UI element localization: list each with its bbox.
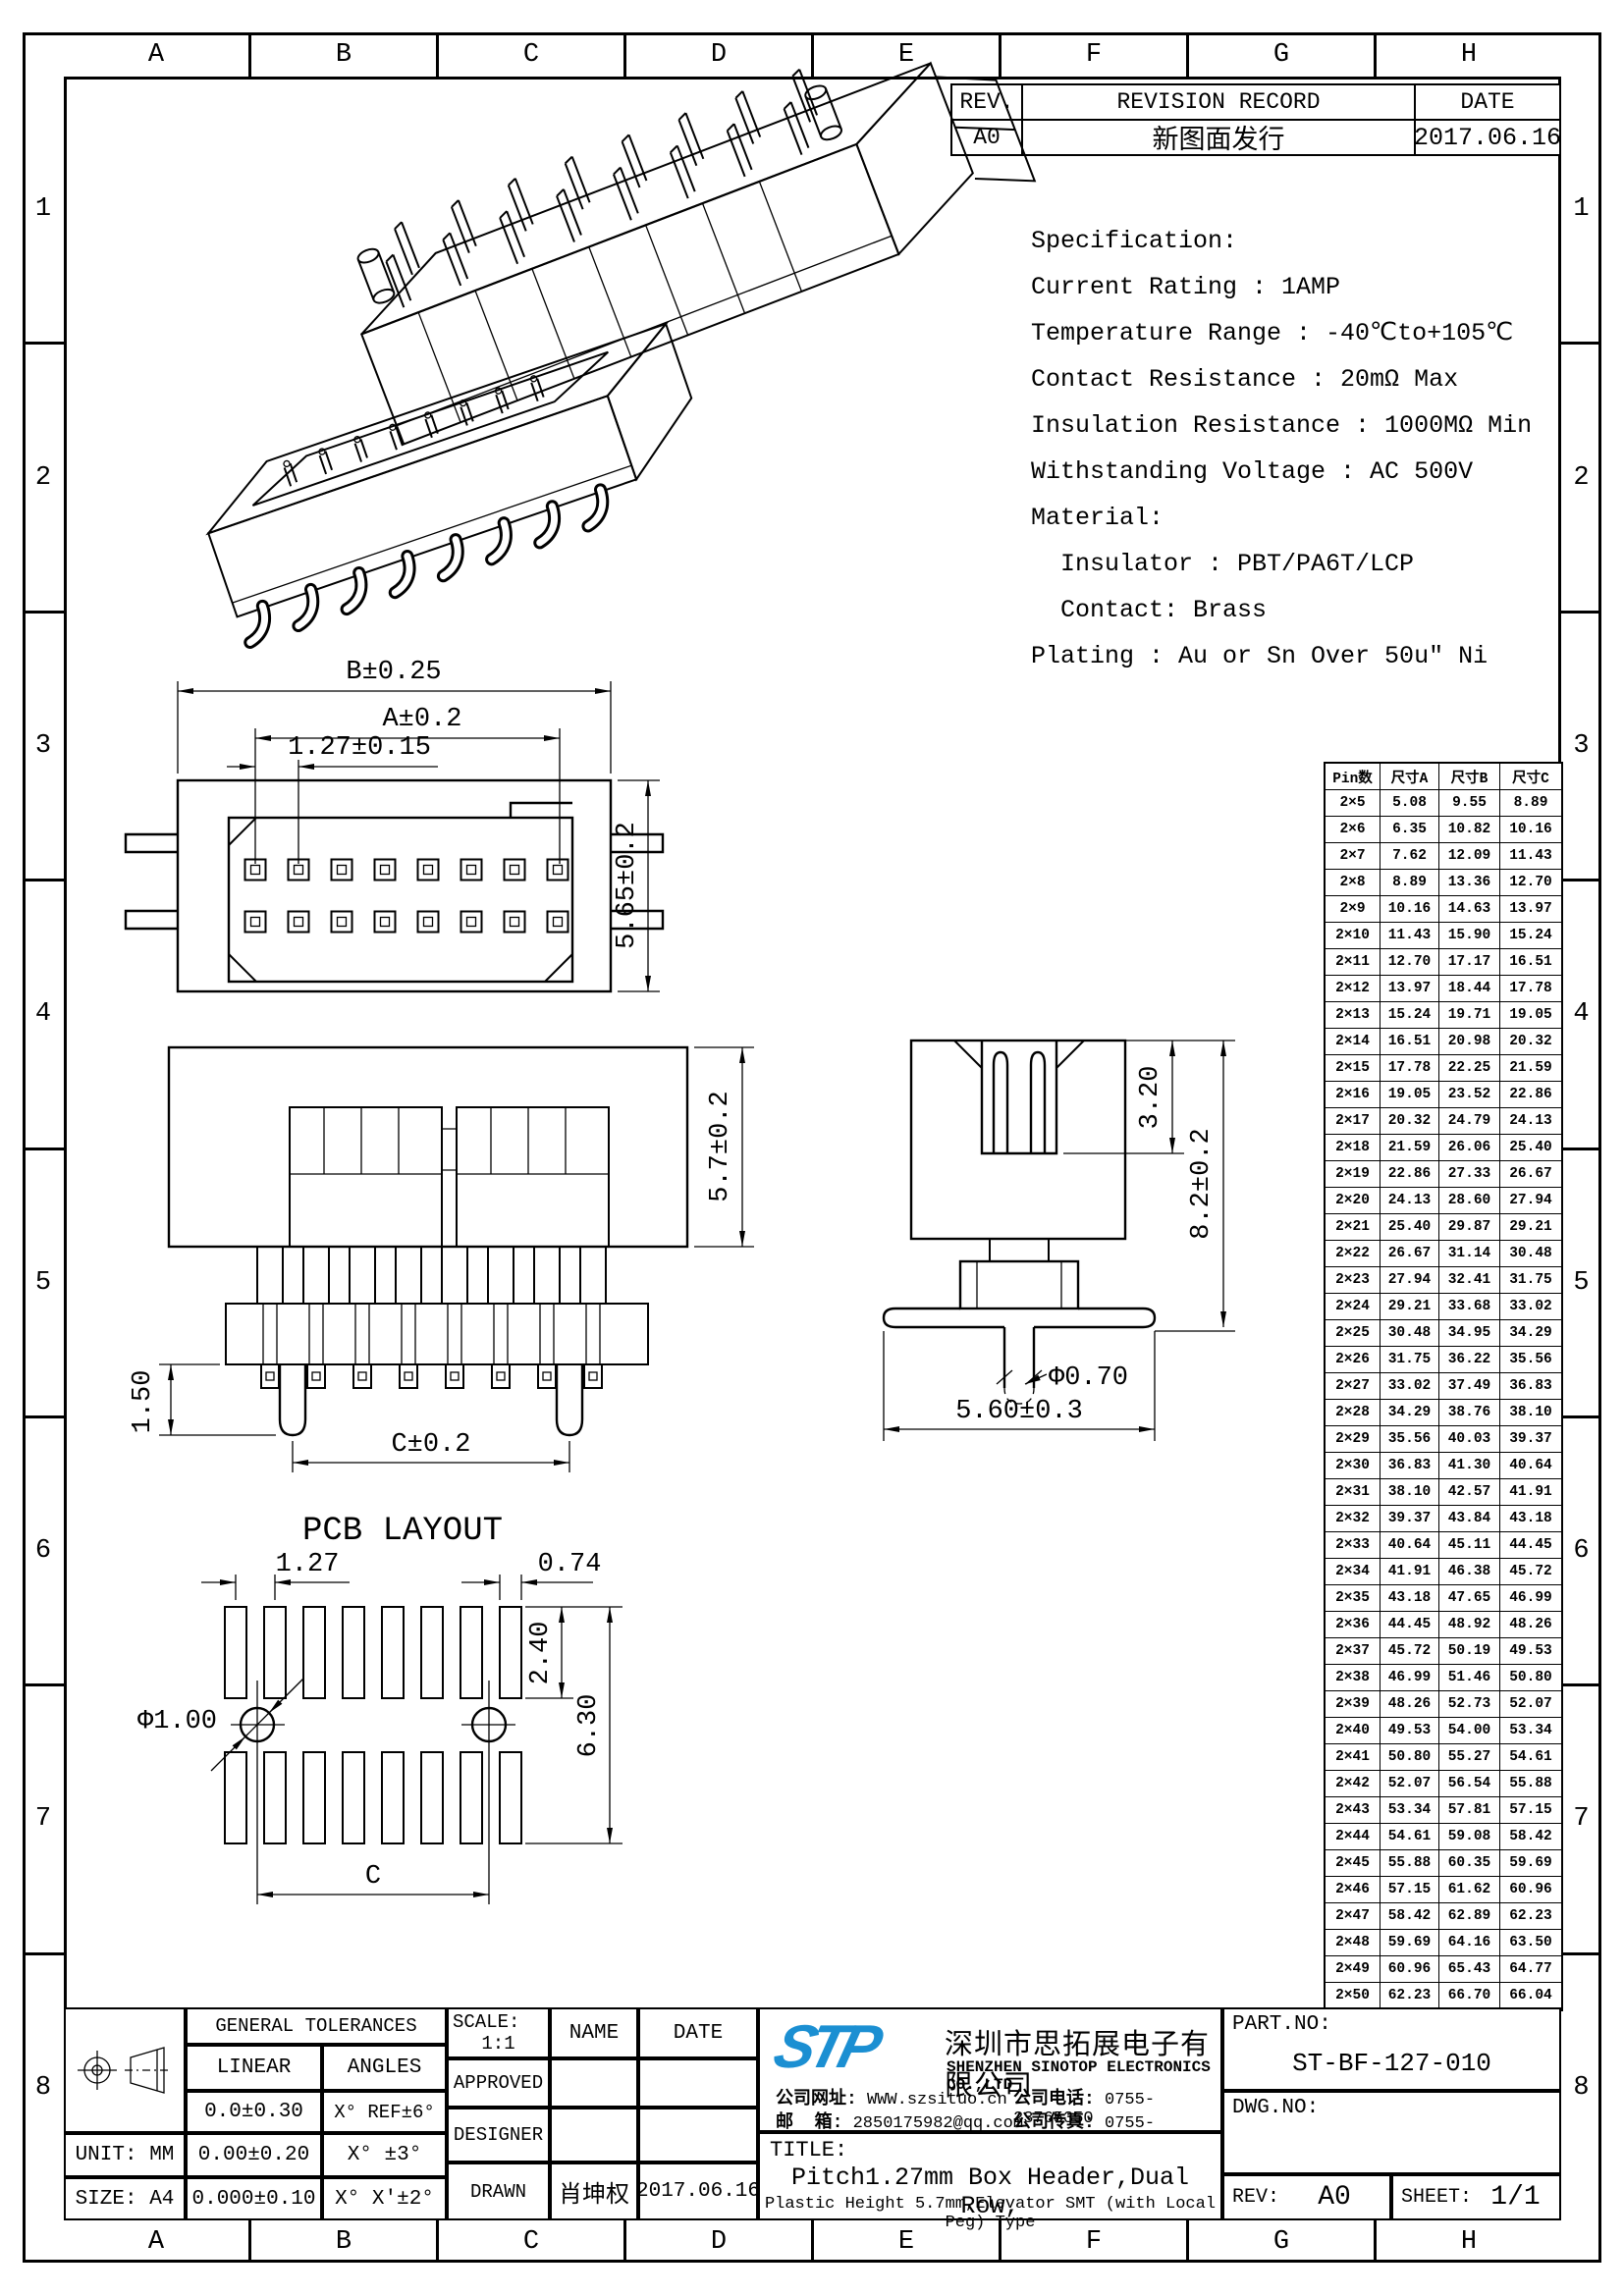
dim-table-value: 43.18 [1500,1506,1561,1532]
dim-table-value: 7.62 [1380,843,1439,870]
dim-table-value: 59.69 [1380,1930,1439,1956]
company-email-label: 邮 箱: [776,2113,842,2133]
linear-tol-row-1: 0.0±0.30 [186,2091,322,2133]
dim-table-value: 15.24 [1380,1002,1439,1029]
dim-table-value: 11.43 [1380,923,1439,949]
grid-number-1: 1 [1561,77,1601,342]
grid-number-2: 2 [1561,342,1601,610]
dim-table-value: 16.51 [1380,1029,1439,1055]
dim-table-value: 21.59 [1500,1055,1561,1082]
sheet-label: SHEET: [1401,2186,1472,2209]
drawing-title-cell: TITLE: Pitch1.27mm Box Header,Dual Row, … [758,2132,1222,2220]
grid-number-5: 5 [23,1148,64,1415]
dim-table-value: 19.05 [1500,1002,1561,1029]
part-no-value: ST-BF-127-010 [1224,2049,1559,2078]
size-cell: SIZE: A4 [64,2177,186,2220]
dim-table-value: 34.29 [1500,1320,1561,1347]
dim-table-value: 41.30 [1439,1453,1500,1479]
dim-table-value: 24.13 [1500,1108,1561,1135]
dim-table-header-pins: Pin数 [1326,764,1380,790]
dim-table-header-c: 尺寸C [1500,764,1561,790]
dim-table-pins: 2×27 [1326,1373,1380,1400]
dim-table-value: 59.08 [1439,1824,1500,1850]
part-no-cell: PART.NO: ST-BF-127-010 [1222,2007,1561,2091]
dim-table-value: 35.56 [1380,1426,1439,1453]
dim-table-pins: 2×21 [1326,1214,1380,1241]
dim-table-value: 14.63 [1439,896,1500,923]
dim-table-pins: 2×13 [1326,1002,1380,1029]
grid-letter-E: E [811,32,999,77]
dim-table-header-b: 尺寸B [1439,764,1500,790]
designer-date-cell [638,2108,758,2163]
dim-table-pins: 2×50 [1326,1983,1380,2009]
dim-table-pins: 2×6 [1326,817,1380,843]
dim-table-value: 22.86 [1380,1161,1439,1188]
dim-table-value: 10.16 [1380,896,1439,923]
dim-table-value: 57.81 [1439,1797,1500,1824]
dim-table-value: 29.21 [1500,1214,1561,1241]
approved-date-cell [638,2058,758,2108]
dim-table-value: 5.08 [1380,790,1439,817]
dim-table-value: 27.94 [1500,1188,1561,1214]
dwg-no-cell: DWG.NO: [1222,2091,1561,2174]
dwg-no-label: DWG.NO: [1232,2097,1319,2119]
spec-line-6: Material: [1031,495,1561,541]
dim-table-value: 31.75 [1500,1267,1561,1294]
dim-table-value: 62.23 [1380,1983,1439,2009]
spec-line-1: Current Rating : 1AMP [1031,264,1561,310]
specification-block: Specification:Current Rating : 1AMPTempe… [1031,218,1561,679]
dim-table-value: 23.52 [1439,1082,1500,1108]
approved-name-cell [550,2058,638,2108]
angle-tol-row-1: X° REF±6° [322,2091,447,2133]
dim-table-pins: 2×48 [1326,1930,1380,1956]
dim-table-value: 54.00 [1439,1718,1500,1744]
dim-table-value: 10.82 [1439,817,1500,843]
spec-line-8: Contact: Brass [1031,587,1561,633]
linear-tol-row-3: 0.000±0.10 [186,2177,322,2220]
scale-label: SCALE: [453,2011,519,2033]
dim-table-pins: 2×34 [1326,1559,1380,1585]
dim-table-pins: 2×49 [1326,1956,1380,1983]
dim-table-value: 44.45 [1380,1612,1439,1638]
dim-table-value: 13.97 [1500,896,1561,923]
dim-table-value: 25.40 [1380,1214,1439,1241]
dim-table-value: 64.16 [1439,1930,1500,1956]
revision-date-header: DATE [1414,83,1561,121]
dim-table-value: 37.49 [1439,1373,1500,1400]
dim-table-pins: 2×47 [1326,1903,1380,1930]
dim-table-value: 60.96 [1380,1956,1439,1983]
angles-header: ANGLES [322,2045,447,2091]
dim-table-value: 8.89 [1500,790,1561,817]
dim-table-value: 19.71 [1439,1002,1500,1029]
grid-number-4: 4 [1561,879,1601,1147]
revision-record-value: 新图面发行 [1021,119,1416,156]
dim-table-value: 53.34 [1500,1718,1561,1744]
grid-letter-H: H [1374,32,1561,77]
revision-date-value: 2017.06.16 [1414,119,1561,156]
dim-table-value: 10.16 [1500,817,1561,843]
grid-letter-H: H [1374,2220,1561,2263]
grid-letter-C: C [436,2220,623,2263]
dim-table-pins: 2×23 [1326,1267,1380,1294]
dim-table-pins: 2×44 [1326,1824,1380,1850]
dim-table-value: 8.89 [1380,870,1439,896]
grid-number-5: 5 [1561,1148,1601,1415]
dim-table-value: 27.33 [1439,1161,1500,1188]
dim-table-value: 50.80 [1500,1665,1561,1691]
designer-label: DESIGNER [447,2108,550,2163]
spec-line-0: Specification: [1031,218,1561,264]
grid-numbers-right: 12345678 [1561,77,1601,2220]
rev-label: REV: [1232,2186,1279,2209]
dim-table-value: 38.10 [1500,1400,1561,1426]
dim-table-value: 22.25 [1439,1055,1500,1082]
dim-table-value: 24.13 [1380,1188,1439,1214]
dim-table-value: 41.91 [1500,1479,1561,1506]
dim-table-pins: 2×12 [1326,976,1380,1002]
unit-cell: UNIT: MM [64,2133,186,2177]
dim-table-value: 45.72 [1380,1638,1439,1665]
dim-table-pins: 2×46 [1326,1877,1380,1903]
dim-table-value: 36.83 [1380,1453,1439,1479]
dim-table-value: 46.99 [1500,1585,1561,1612]
dim-table-value: 60.96 [1500,1877,1561,1903]
dim-table-value: 48.26 [1500,1612,1561,1638]
dim-table-pins: 2×5 [1326,790,1380,817]
dim-table-pins: 2×28 [1326,1400,1380,1426]
drawn-date: 2017.06.16 [638,2163,758,2220]
grid-letter-D: D [623,32,811,77]
drawn-name: 肖坤权 [550,2163,638,2220]
dim-table-value: 55.88 [1380,1850,1439,1877]
grid-number-7: 7 [23,1683,64,1951]
dim-table-value: 26.06 [1439,1135,1500,1161]
dim-table-pins: 2×8 [1326,870,1380,896]
dim-table-value: 59.69 [1500,1850,1561,1877]
dim-table-value: 28.60 [1439,1188,1500,1214]
revision-record-header: REVISION RECORD [1021,83,1416,121]
dim-table-value: 31.75 [1380,1347,1439,1373]
dim-table-value: 27.94 [1380,1267,1439,1294]
dim-table-pins: 2×24 [1326,1294,1380,1320]
dim-table-value: 25.40 [1500,1135,1561,1161]
name-header: NAME [550,2007,638,2058]
dim-table-pins: 2×10 [1326,923,1380,949]
date-header: DATE [638,2007,758,2058]
dim-table-value: 58.42 [1380,1903,1439,1930]
dim-table-value: 33.02 [1380,1373,1439,1400]
dim-table-pins: 2×39 [1326,1691,1380,1718]
dim-table-value: 55.88 [1500,1771,1561,1797]
dim-table-value: 39.37 [1500,1426,1561,1453]
spec-line-2: Temperature Range : -40℃to+105℃ [1031,310,1561,356]
dim-table-pins: 2×7 [1326,843,1380,870]
dim-table-value: 15.24 [1500,923,1561,949]
dim-table-header-a: 尺寸A [1380,764,1439,790]
dim-table-value: 11.43 [1500,843,1561,870]
company-website-label: 公司网址: [776,2090,857,2109]
rev-value: A0 [1279,2182,1389,2213]
dim-table-value: 66.04 [1500,1983,1561,2009]
dim-table-value: 21.59 [1380,1135,1439,1161]
grid-letter-B: B [248,32,436,77]
company-phone-label: 公司电话: [1013,2090,1095,2109]
dim-table-value: 12.70 [1380,949,1439,976]
dim-table-pins: 2×31 [1326,1479,1380,1506]
dim-table-value: 33.68 [1439,1294,1500,1320]
dim-table-value: 20.32 [1500,1029,1561,1055]
scale-value: 1:1 [453,2033,544,2055]
grid-number-6: 6 [1561,1415,1601,1683]
linear-header: LINEAR [186,2045,322,2091]
dim-table-value: 66.70 [1439,1983,1500,2009]
dim-table-pins: 2×9 [1326,896,1380,923]
stp-logo: STP [767,2013,882,2082]
dim-table-value: 51.46 [1439,1665,1500,1691]
dim-table-pins: 2×37 [1326,1638,1380,1665]
dim-table-value: 63.50 [1500,1930,1561,1956]
dim-table-value: 30.48 [1380,1320,1439,1347]
grid-number-3: 3 [1561,611,1601,879]
dim-table-value: 53.34 [1380,1797,1439,1824]
dim-table-value: 45.11 [1439,1532,1500,1559]
dim-table-pins: 2×22 [1326,1241,1380,1267]
scale-cell: SCALE: 1:1 [447,2007,550,2058]
dim-table-value: 64.77 [1500,1956,1561,1983]
title-label: TITLE: [770,2138,847,2163]
dim-table-value: 20.98 [1439,1029,1500,1055]
dim-table-value: 45.72 [1500,1559,1561,1585]
sheet-value: 1/1 [1472,2182,1559,2213]
dim-table-value: 44.45 [1500,1532,1561,1559]
dim-table-value: 9.55 [1439,790,1500,817]
dim-table-value: 40.64 [1380,1532,1439,1559]
projection-symbol [66,2009,184,2131]
designer-name-cell [550,2108,638,2163]
dim-table-value: 48.92 [1439,1612,1500,1638]
dim-table-pins: 2×11 [1326,949,1380,976]
dim-table-value: 36.22 [1439,1347,1500,1373]
dim-table-value: 17.78 [1380,1055,1439,1082]
spec-line-4: Insulation Resistance : 1000MΩ Min [1031,402,1561,449]
dim-table-pins: 2×17 [1326,1108,1380,1135]
dim-table-value: 36.83 [1500,1373,1561,1400]
spec-line-3: Contact Resistance : 20mΩ Max [1031,356,1561,402]
grid-letter-F: F [999,32,1186,77]
dim-table-pins: 2×33 [1326,1532,1380,1559]
dim-table-pins: 2×25 [1326,1320,1380,1347]
dim-table-pins: 2×36 [1326,1612,1380,1638]
dim-table-pins: 2×18 [1326,1135,1380,1161]
dim-table-value: 40.64 [1500,1453,1561,1479]
dim-table-value: 57.15 [1500,1797,1561,1824]
dim-table-value: 22.86 [1500,1082,1561,1108]
dim-table-pins: 2×35 [1326,1585,1380,1612]
revision-rev-value: A0 [950,119,1023,156]
dim-table-value: 16.51 [1500,949,1561,976]
rev-cell: REV: A0 [1222,2174,1391,2220]
dim-table-value: 40.03 [1439,1426,1500,1453]
dim-table-pins: 2×40 [1326,1718,1380,1744]
spec-line-9: Plating : Au or Sn Over 50u″ Ni [1031,633,1561,679]
company-block: STP 深圳市思拓展电子有限公司 SHENZHEN SINOTOP ELECTR… [758,2007,1222,2132]
dim-table-value: 13.36 [1439,870,1500,896]
dim-table-pins: 2×26 [1326,1347,1380,1373]
drawn-label: DRAWN [447,2163,550,2220]
grid-number-7: 7 [1561,1683,1601,1951]
dim-table-pins: 2×14 [1326,1029,1380,1055]
angle-tol-row-3: X° X'±2° [322,2177,447,2220]
dim-table-value: 60.35 [1439,1850,1500,1877]
dim-table-pins: 2×15 [1326,1055,1380,1082]
approved-label: APPROVED [447,2058,550,2108]
dim-table-value: 18.44 [1439,976,1500,1002]
dim-table-pins: 2×38 [1326,1665,1380,1691]
dim-table-value: 56.54 [1439,1771,1500,1797]
dim-table-pins: 2×30 [1326,1453,1380,1479]
grid-letter-C: C [436,32,623,77]
dim-table-value: 15.90 [1439,923,1500,949]
dim-table-value: 34.29 [1380,1400,1439,1426]
dim-table-value: 49.53 [1500,1638,1561,1665]
part-no-label: PART.NO: [1232,2013,1331,2036]
dim-table-value: 20.32 [1380,1108,1439,1135]
projection-symbol-cell [64,2007,186,2133]
dim-table-value: 42.57 [1439,1479,1500,1506]
company-fax-label: 公司传真: [1013,2113,1095,2133]
dim-table-value: 30.48 [1500,1241,1561,1267]
dim-table-value: 43.18 [1380,1585,1439,1612]
dim-table-value: 61.62 [1439,1877,1500,1903]
dim-table-pins: 2×42 [1326,1771,1380,1797]
dim-table-value: 54.61 [1380,1824,1439,1850]
dim-table-pins: 2×43 [1326,1797,1380,1824]
dim-table-value: 46.99 [1380,1665,1439,1691]
dim-table-value: 39.37 [1380,1506,1439,1532]
company-email: 2850175982@qq.com [853,2114,1023,2133]
dim-table-value: 26.67 [1500,1161,1561,1188]
dim-table-value: 62.89 [1439,1903,1500,1930]
dim-table-pins: 2×41 [1326,1744,1380,1771]
grid-numbers-left: 12345678 [23,77,64,2220]
dim-table-value: 31.14 [1439,1241,1500,1267]
grid-number-8: 8 [23,1952,64,2220]
dim-table-value: 6.35 [1380,817,1439,843]
dim-table-value: 41.91 [1380,1559,1439,1585]
dim-table-value: 17.17 [1439,949,1500,976]
grid-letter-A: A [64,2220,248,2263]
dim-table-pins: 2×29 [1326,1426,1380,1453]
dim-table-value: 34.95 [1439,1320,1500,1347]
dim-table-value: 35.56 [1500,1347,1561,1373]
dim-table-value: 48.26 [1380,1691,1439,1718]
dim-table-value: 17.78 [1500,976,1561,1002]
general-tolerances-header: GENERAL TOLERANCES [186,2007,447,2045]
dim-table-value: 55.27 [1439,1744,1500,1771]
grid-letter-B: B [248,2220,436,2263]
dim-table-pins: 2×32 [1326,1506,1380,1532]
grid-number-8: 8 [1561,1952,1601,2220]
dim-table-value: 52.07 [1500,1691,1561,1718]
dim-table-value: 54.61 [1500,1744,1561,1771]
dim-table-value: 57.15 [1380,1877,1439,1903]
dim-table-pins: 2×16 [1326,1082,1380,1108]
grid-letters-top: ABCDEFGH [64,32,1561,77]
grid-number-1: 1 [23,77,64,342]
grid-letter-A: A [64,32,248,77]
dim-table-value: 33.02 [1500,1294,1561,1320]
dim-table-value: 38.76 [1439,1400,1500,1426]
grid-number-6: 6 [23,1415,64,1683]
dim-table-value: 49.53 [1380,1718,1439,1744]
dim-table-value: 13.97 [1380,976,1439,1002]
dim-table-value: 52.73 [1439,1691,1500,1718]
dim-table-value: 19.05 [1380,1082,1439,1108]
dimension-table: Pin数 尺寸A 尺寸B 尺寸C 2×55.089.558.892×66.351… [1324,762,1563,2011]
dim-table-value: 52.07 [1380,1771,1439,1797]
dim-table-value: 29.21 [1380,1294,1439,1320]
dim-table-pins: 2×20 [1326,1188,1380,1214]
dim-table-value: 43.84 [1439,1506,1500,1532]
linear-tol-row-2: 0.00±0.20 [186,2133,322,2177]
dim-table-value: 50.80 [1380,1744,1439,1771]
dim-table-value: 24.79 [1439,1108,1500,1135]
dim-table-value: 29.87 [1439,1214,1500,1241]
dim-table-value: 58.42 [1500,1824,1561,1850]
drawing-sheet: ABCDEFGH ABCDEFGH 12345678 12345678 REV.… [0,0,1624,2296]
dim-table-pins: 2×19 [1326,1161,1380,1188]
angle-tol-row-2: X° ±3° [322,2133,447,2177]
dim-table-value: 50.19 [1439,1638,1500,1665]
dim-table-value: 12.70 [1500,870,1561,896]
grid-number-2: 2 [23,342,64,610]
drawing-title-line2: Plastic Height 5.7mm,Elevator SMT (with … [760,2195,1220,2232]
dim-table-value: 65.43 [1439,1956,1500,1983]
dim-table-value: 12.09 [1439,843,1500,870]
dim-table-value: 47.65 [1439,1585,1500,1612]
dim-table-value: 62.23 [1500,1903,1561,1930]
spec-line-5: Withstanding Voltage : AC 500V [1031,449,1561,495]
dim-table-value: 38.10 [1380,1479,1439,1506]
dim-table-value: 32.41 [1439,1267,1500,1294]
grid-number-3: 3 [23,611,64,879]
dim-table-pins: 2×45 [1326,1850,1380,1877]
grid-letter-G: G [1186,32,1374,77]
revision-rev-header: REV. [950,83,1023,121]
spec-line-7: Insulator : PBT/PA6T/LCP [1031,541,1561,587]
sheet-cell: SHEET: 1/1 [1391,2174,1561,2220]
dim-table-value: 26.67 [1380,1241,1439,1267]
grid-number-4: 4 [23,879,64,1147]
dim-table-value: 46.38 [1439,1559,1500,1585]
